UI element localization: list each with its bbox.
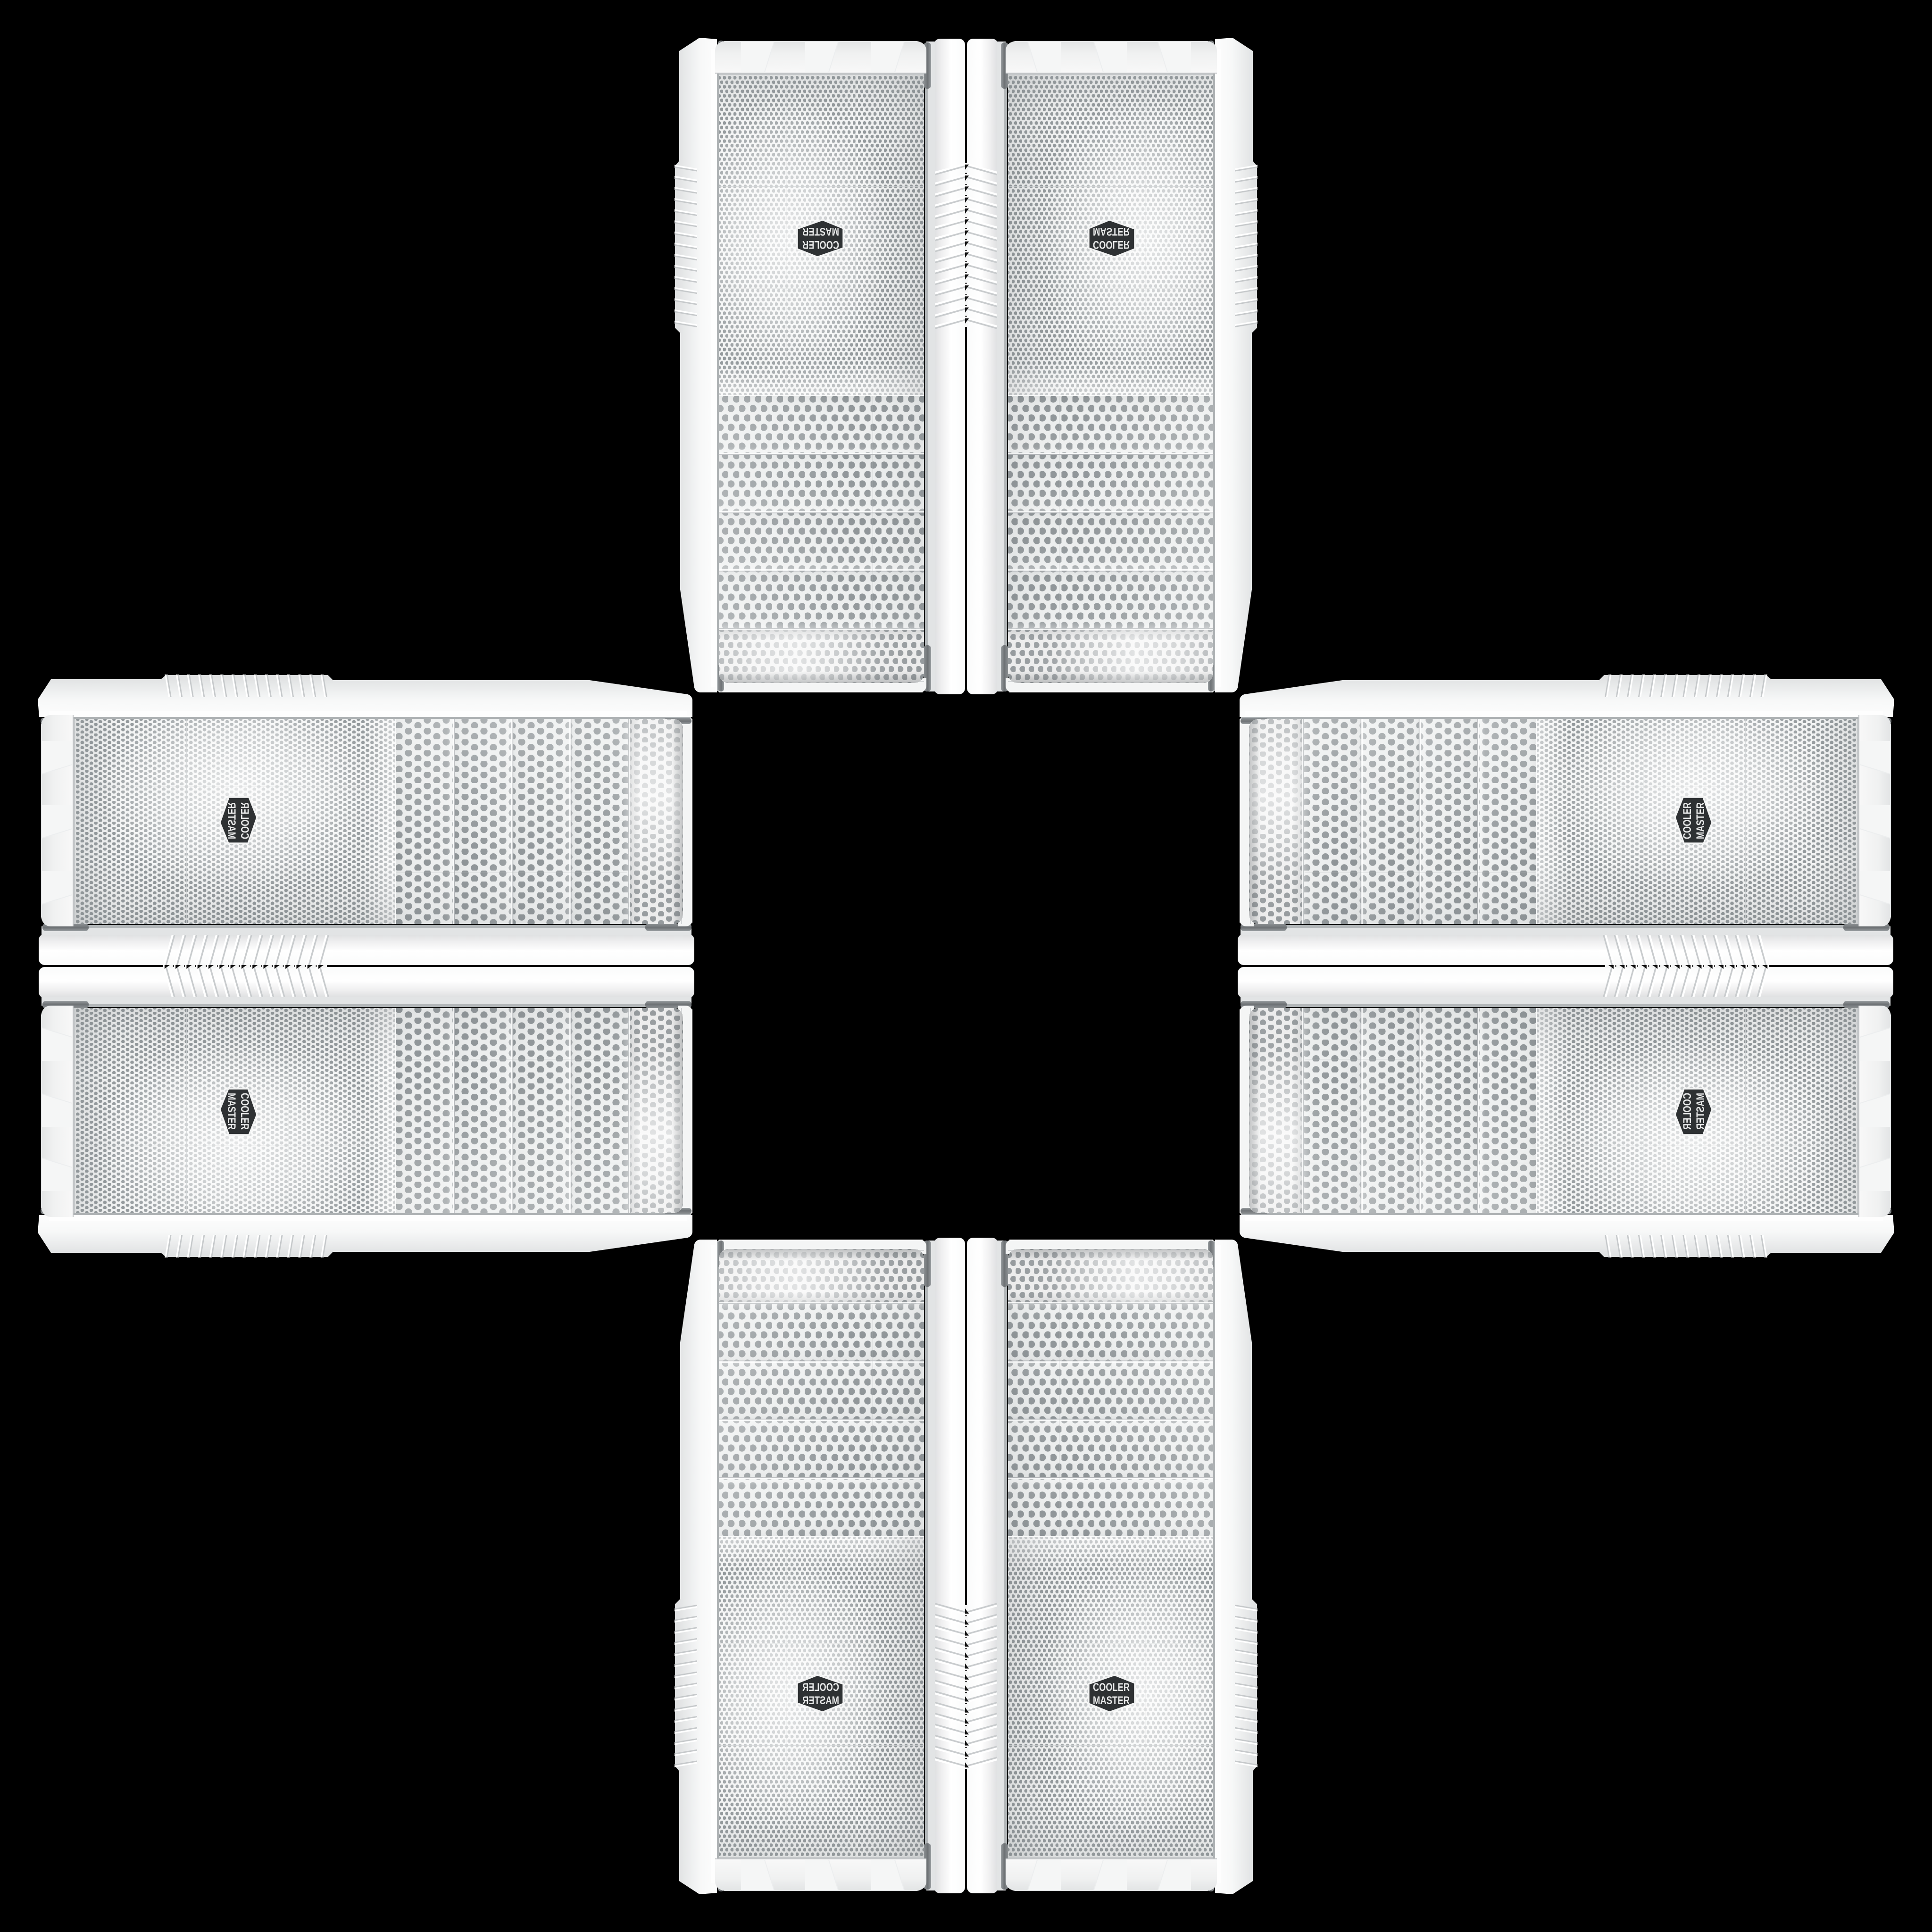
svg-text:COOLER: COOLER [1093, 1681, 1130, 1694]
svg-text:MASTER: MASTER [1093, 1694, 1130, 1707]
